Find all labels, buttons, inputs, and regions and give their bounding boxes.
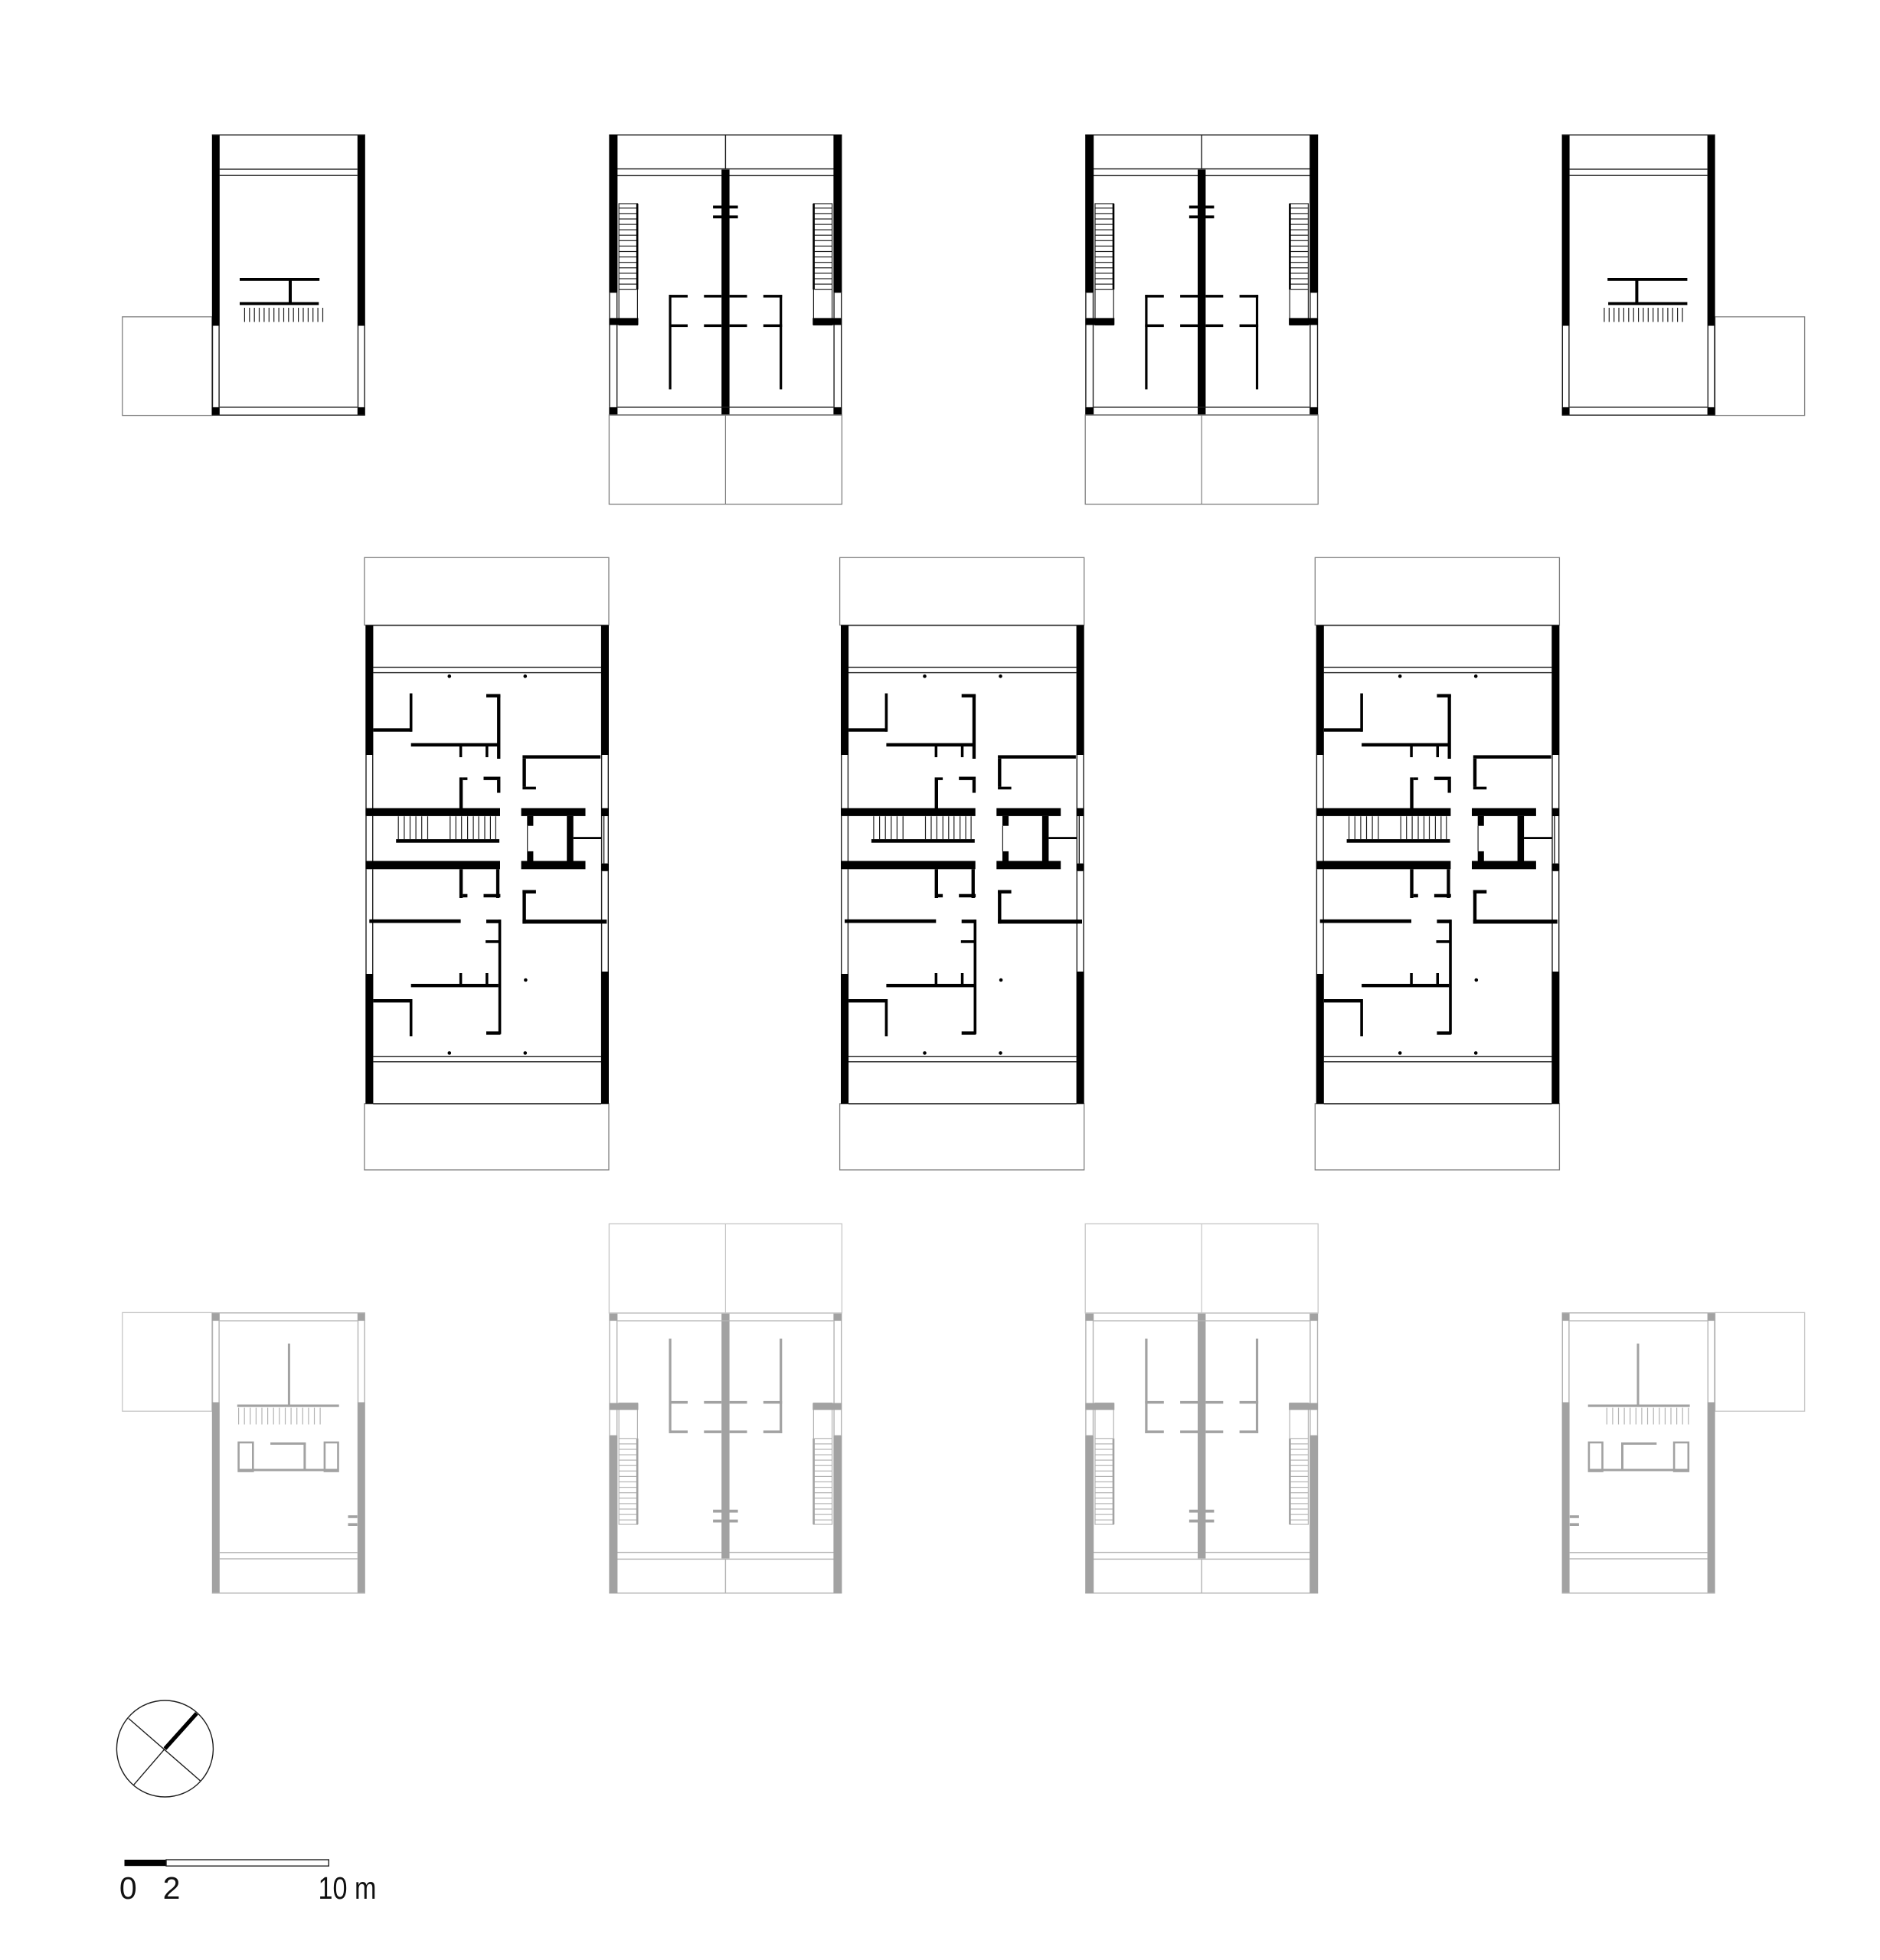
svg-text:0: 0 [119,1870,137,1906]
svg-text:2: 2 [163,1870,181,1906]
svg-text:10 m: 10 m [319,1870,377,1906]
